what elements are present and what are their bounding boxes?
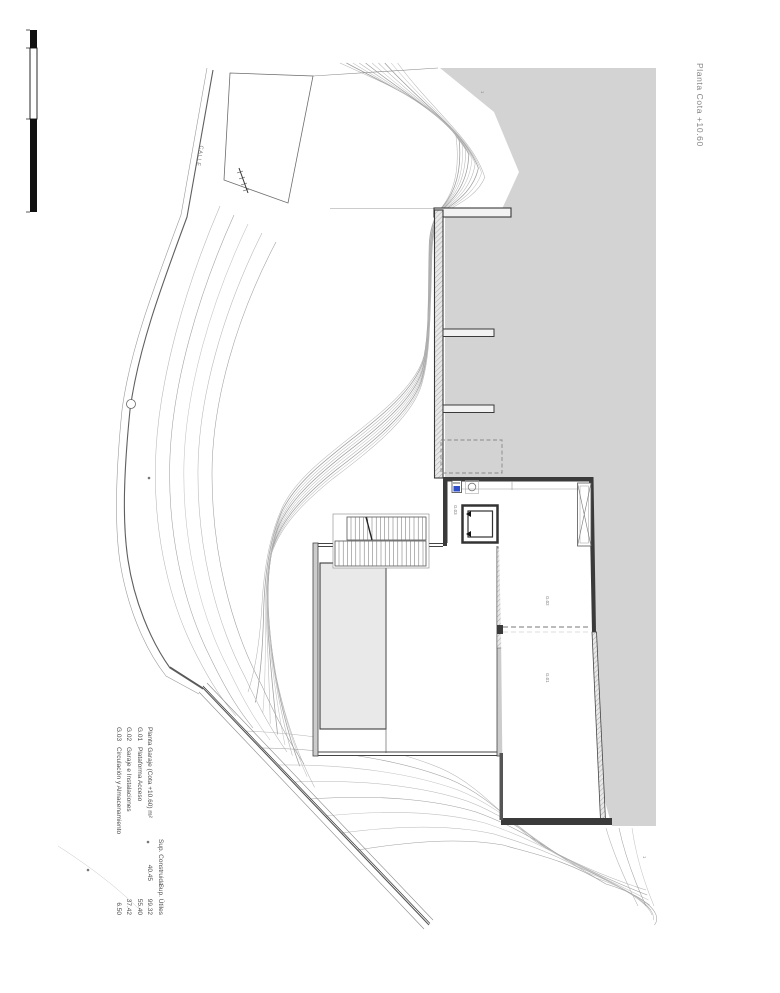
access-platform <box>313 540 512 756</box>
contour-line <box>155 206 236 716</box>
area-table-row: G.02Garaje e Instalaciones37.42 <box>123 727 134 915</box>
sup-utiles-value: 6.50 <box>113 881 124 915</box>
elevation-mark-bottom: 1 <box>642 856 647 859</box>
room-code: G.02 <box>123 727 134 747</box>
wall-fin-mid1 <box>443 329 494 337</box>
room-name: Garaje e Instalaciones <box>123 747 134 839</box>
area-table: Sup. Construida Sup. Útiles Planta Garaj… <box>113 727 166 915</box>
area-table-body: Planta Garaje (Cota +10.60) m²40.4599.32… <box>113 727 155 915</box>
room-code: G.01 <box>134 727 145 747</box>
drawing-sheet: 1 1 G.03 G.02 G.01 Planta Cota +10.60 CA… <box>0 0 780 993</box>
scale-bar <box>26 30 37 212</box>
area-table-header: Sup. Construida Sup. Útiles <box>155 727 166 915</box>
stair <box>333 514 429 568</box>
wall-fin-top <box>434 208 511 217</box>
room-name: Planta Garaje (Cota +10.60) m² <box>144 727 155 839</box>
header-sup-utiles: Sup. Útiles <box>155 881 166 915</box>
room-name: Circulación y Almacenamiento <box>113 747 124 839</box>
area-table-row: Planta Garaje (Cota +10.60) m²40.4599.32 <box>144 727 155 915</box>
interior-stair <box>578 483 592 546</box>
blue-fixture <box>452 481 462 493</box>
room-label-g03: G.03 <box>453 505 458 515</box>
wall-fin-mid2 <box>443 405 494 413</box>
area-table-row: G.01Plataforma Acceso55.40 <box>134 727 145 915</box>
contour-line <box>170 215 253 728</box>
contour-line <box>632 828 654 906</box>
boundary-node-circle <box>127 400 136 409</box>
room-label-g01: G.01 <box>545 673 550 683</box>
sup-utiles-value: 37.42 <box>123 881 134 915</box>
sheet-title: Planta Cota +10.60 <box>695 63 705 147</box>
sup-utiles-value: 99.32 <box>144 881 155 915</box>
area-table-row: G.03Circulación y Almacenamiento6.50 <box>113 727 124 915</box>
wall-vertical <box>435 210 444 478</box>
room-code: G.03 <box>113 727 124 747</box>
contour-line <box>184 224 270 740</box>
header-sup-construida: Sup. Construida <box>155 839 166 881</box>
room-label-g02: G.02 <box>545 596 550 606</box>
street-access-platform <box>224 73 313 203</box>
contour-line <box>198 233 287 752</box>
platform-left-wall <box>313 543 318 756</box>
garage-bottom-wall <box>501 818 612 825</box>
garage-left-wall <box>443 477 448 543</box>
room-name: Plataforma Acceso <box>134 747 145 839</box>
pool <box>320 563 386 729</box>
platform-edge-wall <box>500 753 504 820</box>
contour-line <box>326 812 652 915</box>
sup-construida-value: 40.45 <box>144 839 155 881</box>
elevator <box>463 506 498 543</box>
sup-utiles-value: 55.40 <box>134 881 145 915</box>
